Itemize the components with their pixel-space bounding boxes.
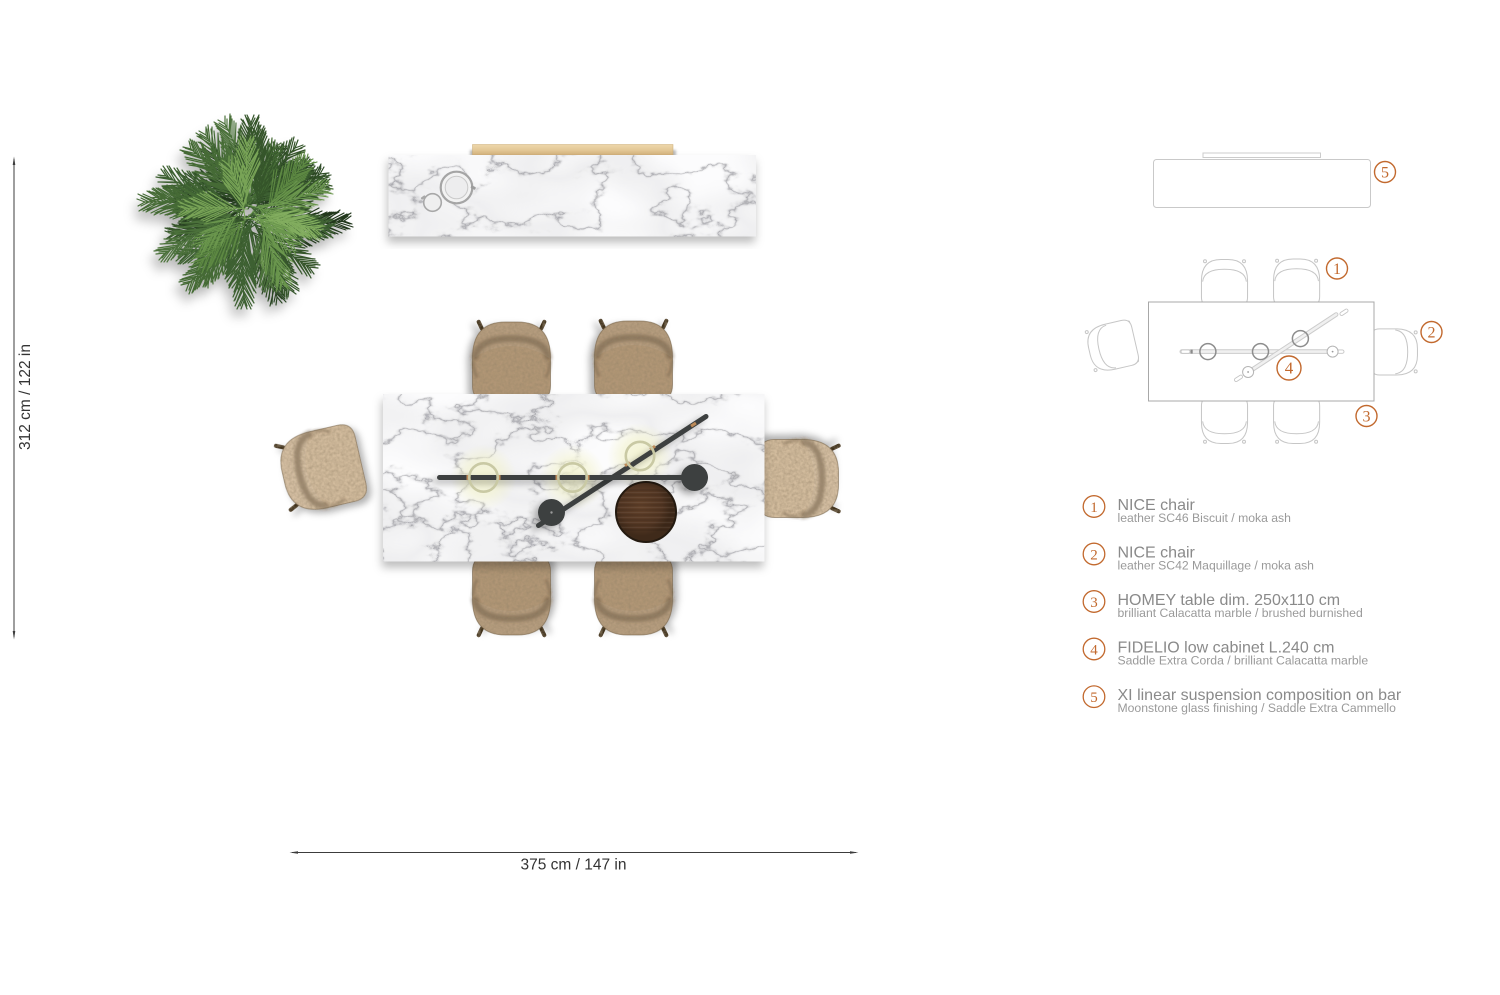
svg-text:5: 5 [1090,690,1098,706]
svg-text:375 cm / 147 in: 375 cm / 147 in [521,857,627,874]
svg-text:2: 2 [1428,325,1436,342]
svg-text:3: 3 [1090,595,1098,611]
svg-text:Saddle Extra Corda / brilliant: Saddle Extra Corda / brilliant Calacatta… [1118,653,1369,667]
svg-text:312 cm / 122 in: 312 cm / 122 in [17,344,34,450]
svg-text:4: 4 [1090,642,1098,658]
svg-text:5: 5 [1381,165,1389,182]
svg-text:4: 4 [1285,359,1294,378]
svg-text:1: 1 [1333,261,1341,278]
svg-text:brilliant Calacatta marble / b: brilliant Calacatta marble / brushed bur… [1118,606,1363,620]
svg-text:leather SC42 Maquillage / moka: leather SC42 Maquillage / moka ash [1118,558,1314,572]
svg-text:leather SC46 Biscuit / moka as: leather SC46 Biscuit / moka ash [1118,511,1291,525]
svg-text:3: 3 [1363,409,1371,426]
svg-text:2: 2 [1090,547,1098,563]
svg-text:Moonstone glass finishing / Sa: Moonstone glass finishing / Saddle Extra… [1118,701,1397,715]
svg-text:1: 1 [1090,500,1098,516]
